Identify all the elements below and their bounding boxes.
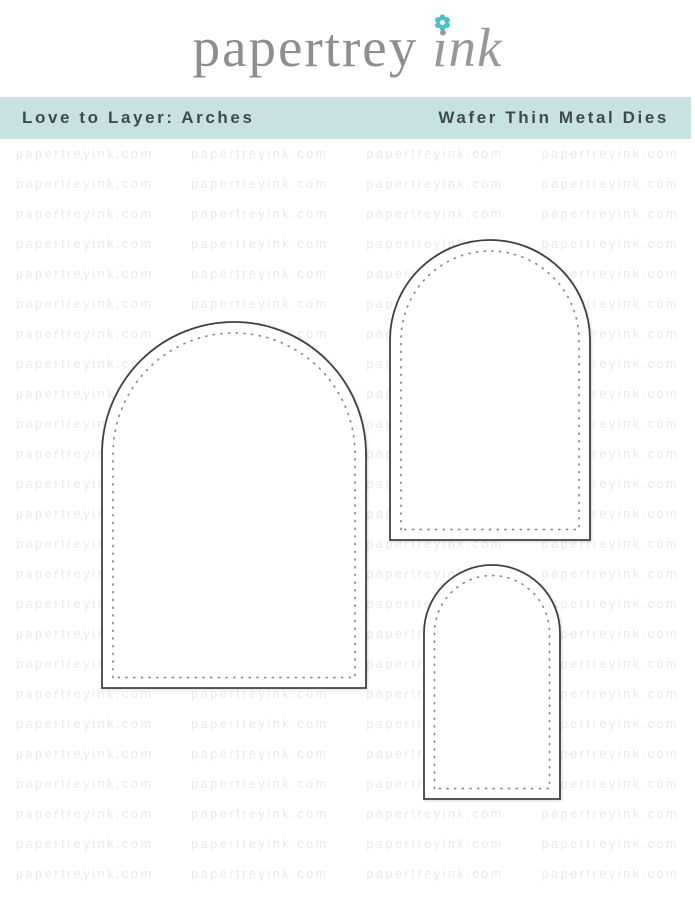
- watermark-text: papertreyink.com: [542, 147, 679, 161]
- brand-name-papertrey: papertrey: [193, 17, 419, 78]
- watermark-text: papertreyink.com: [191, 207, 328, 221]
- watermark-text: papertreyink.com: [542, 567, 679, 581]
- watermark-text: papertreyink.com: [542, 837, 679, 851]
- watermark-text: papertreyink.com: [542, 867, 679, 881]
- watermark-text: papertreyink.com: [542, 207, 679, 221]
- watermark-text: papertreyink.com: [16, 177, 153, 191]
- watermark-text: papertreyink.com: [366, 837, 503, 851]
- watermark-text: papertreyink.com: [16, 837, 153, 851]
- watermark-row: papertreyink.compapertreyink.compapertre…: [0, 859, 695, 889]
- brand-name-ink-wrap: ink: [432, 20, 502, 75]
- watermark-text: papertreyink.com: [542, 657, 679, 671]
- watermark-row: papertreyink.compapertreyink.compapertre…: [0, 829, 695, 859]
- watermark-text: papertreyink.com: [16, 267, 153, 281]
- watermark-text: papertreyink.com: [191, 687, 328, 701]
- watermark-text: papertreyink.com: [542, 177, 679, 191]
- watermark-text: papertreyink.com: [16, 867, 153, 881]
- watermark-text: papertreyink.com: [16, 747, 153, 761]
- watermark-row: papertreyink.compapertreyink.compapertre…: [0, 139, 695, 169]
- flower-icon: [433, 13, 452, 32]
- watermark-text: papertreyink.com: [16, 297, 153, 311]
- watermark-row: papertreyink.compapertreyink.compapertre…: [0, 169, 695, 199]
- watermark-text: papertreyink.com: [16, 717, 153, 731]
- watermark-text: papertreyink.com: [366, 177, 503, 191]
- watermark-text: papertreyink.com: [542, 777, 679, 791]
- watermark-text: papertreyink.com: [542, 597, 679, 611]
- watermark-text: papertreyink.com: [191, 867, 328, 881]
- watermark-text: papertreyink.com: [191, 717, 328, 731]
- watermark-text: papertreyink.com: [191, 807, 328, 821]
- watermark-text: papertreyink.com: [191, 297, 328, 311]
- watermark-text: papertreyink.com: [16, 237, 153, 251]
- watermark-text: papertreyink.com: [191, 147, 328, 161]
- watermark-text: papertreyink.com: [366, 147, 503, 161]
- watermark-text: papertreyink.com: [191, 177, 328, 191]
- product-title: Love to Layer: Arches: [22, 108, 255, 128]
- watermark-text: papertreyink.com: [191, 267, 328, 281]
- product-type: Wafer Thin Metal Dies: [438, 108, 669, 128]
- title-banner: Love to Layer: Arches Wafer Thin Metal D…: [0, 97, 691, 139]
- small-arch-die: [423, 564, 561, 800]
- watermark-text: papertreyink.com: [366, 207, 503, 221]
- watermark-text: papertreyink.com: [191, 837, 328, 851]
- watermark-text: papertreyink.com: [542, 717, 679, 731]
- watermark-text: papertreyink.com: [366, 807, 503, 821]
- watermark-text: papertreyink.com: [191, 237, 328, 251]
- watermark-text: papertreyink.com: [542, 807, 679, 821]
- watermark-text: papertreyink.com: [542, 687, 679, 701]
- watermark-row: papertreyink.compapertreyink.compapertre…: [0, 799, 695, 829]
- watermark-text: papertreyink.com: [16, 207, 153, 221]
- watermark-text: papertreyink.com: [16, 147, 153, 161]
- watermark-text: papertreyink.com: [542, 747, 679, 761]
- product-image: papertrey ink Love to Layer: Arc: [0, 0, 695, 900]
- watermark-text: papertreyink.com: [16, 687, 153, 701]
- watermark-row: papertreyink.compapertreyink.compapertre…: [0, 769, 695, 799]
- watermark-text: papertreyink.com: [366, 867, 503, 881]
- watermark-text: papertreyink.com: [191, 777, 328, 791]
- watermark-row: papertreyink.compapertreyink.compapertre…: [0, 199, 695, 229]
- watermark-text: papertreyink.com: [16, 807, 153, 821]
- watermark-row: papertreyink.compapertreyink.compapertre…: [0, 709, 695, 739]
- large-arch-die: [101, 321, 367, 689]
- watermark-text: papertreyink.com: [542, 627, 679, 641]
- brand-logo: papertrey ink: [0, 0, 695, 97]
- watermark-row: papertreyink.compapertreyink.compapertre…: [0, 739, 695, 769]
- watermark-text: papertreyink.com: [191, 747, 328, 761]
- medium-arch-die: [389, 239, 591, 541]
- watermark-text: papertreyink.com: [16, 777, 153, 791]
